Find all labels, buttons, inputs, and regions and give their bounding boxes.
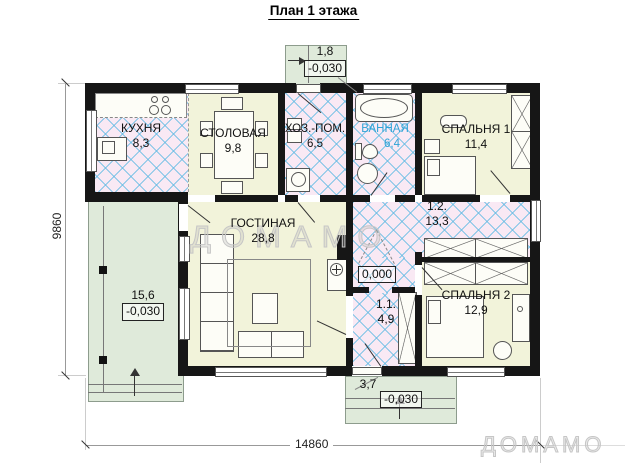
floor-plan: План 1 этажа 9860 14860 15,6 -0,030 1,8 … (0, 0, 627, 470)
wardrobe-icon (475, 238, 528, 259)
room-label-dining: СТОЛОВАЯ 9,8 (200, 126, 266, 157)
extension-line (540, 445, 625, 446)
window (447, 367, 505, 377)
chimney-block (337, 235, 352, 260)
room-name: ВАННАЯ (361, 122, 409, 137)
room-area: 6,4 (361, 137, 409, 152)
wall-segment (215, 195, 278, 202)
room-name: СПАЛЬНЯ 2 (442, 288, 511, 303)
wall-segment (510, 195, 530, 202)
sink-icon (357, 163, 378, 184)
chair (493, 341, 512, 360)
porch-top-width: 1,8 (317, 44, 334, 59)
wardrobe-icon (424, 238, 477, 259)
boiler-icon (330, 263, 343, 276)
terrace-post (99, 266, 107, 274)
room-label-vestibule: 1.1. 4,9 (376, 297, 396, 328)
terrace-rail (103, 206, 104, 392)
wall-segment (320, 195, 346, 202)
window (363, 84, 412, 94)
window (215, 367, 327, 377)
window (86, 110, 97, 172)
room-label-bedroom2: СПАЛЬНЯ 2 12,9 (442, 288, 511, 319)
extension-line (85, 378, 86, 450)
terrace-step (88, 384, 182, 385)
page-title: План 1 этажа (268, 3, 360, 20)
room-name: КУХНЯ (121, 121, 161, 136)
rug-outline (227, 259, 311, 347)
room-label-living: ГОСТИНАЯ 28,8 (231, 216, 296, 247)
room-area: 13,3 (425, 214, 448, 229)
desk (512, 294, 530, 342)
wall-segment (285, 195, 298, 202)
up-arrow-icon (134, 374, 135, 396)
stove-icon (151, 96, 158, 103)
pillow (428, 300, 441, 324)
room-name: 1.2. (425, 199, 448, 214)
up-arrow-icon (130, 368, 140, 376)
room-area: 6,5 (285, 137, 345, 152)
room-name: ГОСТИНАЯ (231, 216, 296, 231)
terrace-level: -0,030 (122, 303, 164, 320)
wall-segment (346, 338, 353, 366)
stove-icon (149, 105, 159, 115)
room-label-kitchen: КУХНЯ 8,3 (121, 121, 161, 152)
door-leaf (296, 84, 321, 93)
room-name: ХОЗ.-ПОМ. (285, 122, 345, 137)
room-area: 11,4 (442, 137, 511, 152)
window (452, 84, 507, 94)
chair (221, 97, 243, 110)
room-name: СПАЛЬНЯ 1 (442, 122, 511, 137)
kitchen-dining-divider (188, 93, 189, 192)
desk-lamp-icon (517, 306, 523, 312)
wardrobe-icon (475, 262, 528, 285)
door-opening (179, 204, 188, 231)
wall-segment (422, 257, 530, 262)
porch-bottom-level-box: -0,030 (380, 391, 422, 408)
wall-segment (346, 93, 353, 296)
kitchen-counter (95, 93, 187, 118)
chair (221, 181, 243, 194)
wall-segment (353, 195, 370, 202)
room-label-bedroom1: СПАЛЬНЯ 1 11,4 (442, 122, 511, 153)
wall-segment (392, 287, 415, 293)
wall-segment (85, 192, 188, 202)
room-area: 8,3 (121, 136, 161, 151)
room-area: 4,9 (376, 312, 396, 327)
wall-segment (415, 93, 422, 195)
terrace-area: 15,6 (122, 288, 164, 303)
room-label-hall: 1.2. 13,3 (425, 199, 448, 230)
stove-icon (161, 105, 171, 115)
room-area: 9,8 (200, 141, 266, 156)
extension-line (540, 378, 541, 463)
wall-segment (353, 287, 369, 293)
room-name: СТОЛОВАЯ (200, 126, 266, 141)
window (185, 84, 239, 94)
bathtub-icon (360, 98, 408, 118)
extension-line (58, 375, 86, 376)
terrace-step (88, 392, 182, 393)
wall-segment (415, 295, 422, 366)
room-label-bathroom: ВАННАЯ 6,4 (361, 122, 409, 151)
room-area: 12,9 (442, 303, 511, 318)
porch-top-level-box: -0,030 (304, 60, 346, 77)
wall-segment (415, 252, 422, 265)
dim-height-label: 9860 (50, 196, 64, 256)
washing-machine-icon (291, 172, 306, 187)
window (531, 200, 541, 242)
terrace-post (99, 356, 107, 364)
window (179, 288, 190, 340)
dim-width-label: 14860 (290, 437, 333, 451)
wardrobe-icon (424, 262, 477, 285)
room-area: 28,8 (231, 231, 296, 246)
level-zero-label: 0,000 (358, 266, 396, 283)
pillow (427, 159, 440, 176)
room-name: 1.1. (376, 297, 396, 312)
terrace-label: 15,6 -0,030 (122, 288, 164, 321)
dim-line-left (65, 83, 66, 376)
door-leaf (352, 367, 382, 375)
stove-icon (162, 96, 169, 103)
room-label-utility: ХОЗ.-ПОМ. 6,5 (285, 122, 345, 151)
porch-bottom-width: 3,7 (360, 377, 377, 392)
nightstand (424, 139, 440, 154)
extension-line (58, 83, 86, 84)
sink-cabinet (102, 141, 115, 154)
wall-segment (395, 195, 415, 202)
window (179, 236, 190, 262)
